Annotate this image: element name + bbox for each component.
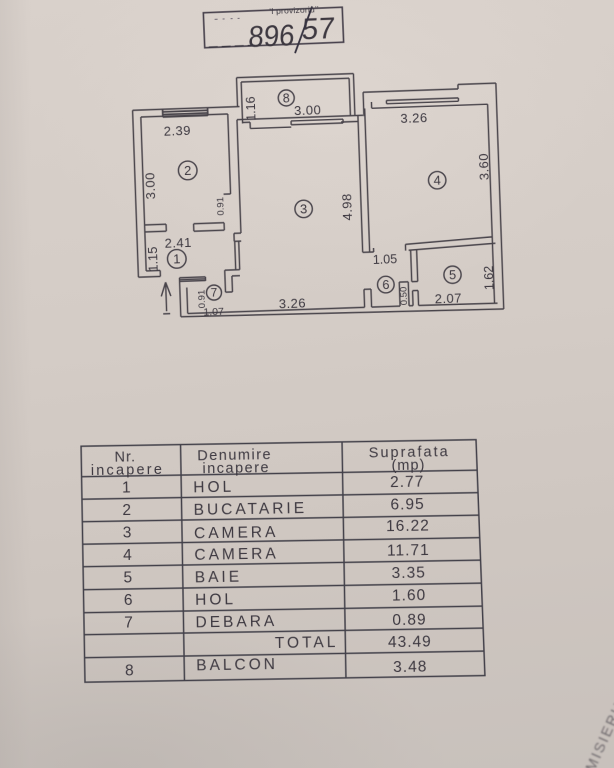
svg-text:0.91: 0.91 [215, 197, 227, 216]
svg-text:incapere: incapere [202, 460, 270, 477]
svg-text:BUCATARIE: BUCATARIE [194, 500, 308, 519]
svg-text:2.41: 2.41 [164, 235, 192, 251]
svg-text:3.35: 3.35 [391, 565, 425, 583]
svg-text:1: 1 [122, 479, 131, 496]
svg-text:1.05: 1.05 [373, 252, 398, 267]
svg-text:3: 3 [300, 201, 308, 216]
svg-text:8: 8 [125, 662, 134, 679]
svg-text:7: 7 [210, 286, 217, 300]
svg-text:3.26: 3.26 [400, 110, 428, 126]
svg-text:1.07: 1.07 [203, 306, 224, 319]
svg-text:4: 4 [123, 547, 132, 564]
svg-text:43.49: 43.49 [388, 633, 432, 651]
svg-text:3.26: 3.26 [279, 295, 307, 311]
svg-text:57: 57 [301, 12, 336, 46]
svg-text:16.22: 16.22 [386, 517, 430, 535]
svg-text:BAIE: BAIE [195, 569, 243, 587]
svg-text:3: 3 [123, 524, 132, 541]
svg-text:3.60: 3.60 [476, 153, 492, 181]
svg-text:incapere: incapere [91, 462, 164, 479]
svg-text:0.89: 0.89 [392, 612, 426, 630]
svg-text:(mp): (mp) [391, 458, 425, 475]
svg-text:1: 1 [173, 251, 181, 266]
svg-text:1.60: 1.60 [392, 587, 426, 605]
svg-text:8: 8 [283, 91, 290, 105]
svg-text:7: 7 [124, 614, 133, 631]
svg-text:0.50: 0.50 [398, 287, 410, 306]
svg-text:5: 5 [123, 569, 132, 586]
svg-text:CAMERA: CAMERA [194, 545, 279, 563]
svg-text:HOL: HOL [195, 591, 236, 609]
svg-text:CAMERA: CAMERA [194, 524, 279, 542]
svg-text:HOL: HOL [193, 479, 234, 497]
svg-text:11.71: 11.71 [387, 542, 430, 560]
svg-text:TOTAL: TOTAL [275, 634, 339, 652]
svg-text:3.00: 3.00 [142, 172, 158, 200]
svg-text:896: 896 [247, 19, 295, 54]
svg-text:2.07: 2.07 [434, 290, 462, 306]
svg-text:1.15: 1.15 [145, 246, 161, 272]
svg-text:6: 6 [124, 592, 133, 609]
svg-text:MISIERU: MISIERU [583, 700, 614, 768]
svg-text:2: 2 [122, 502, 131, 519]
svg-text:5: 5 [449, 267, 457, 282]
svg-text:3.00: 3.00 [294, 102, 322, 118]
svg-text:1.62: 1.62 [482, 266, 497, 291]
svg-text:BALCON: BALCON [196, 656, 278, 674]
svg-text:4.98: 4.98 [339, 193, 355, 221]
svg-text:3.48: 3.48 [393, 659, 427, 677]
svg-text:2.77: 2.77 [390, 474, 424, 492]
svg-text:4: 4 [433, 173, 441, 188]
svg-text:DEBARA: DEBARA [195, 613, 277, 631]
svg-text:6.95: 6.95 [390, 496, 424, 514]
svg-text:1.16: 1.16 [244, 96, 259, 121]
svg-text:2: 2 [184, 163, 192, 178]
svg-text:6: 6 [382, 277, 390, 292]
svg-text:2.39: 2.39 [163, 123, 191, 139]
